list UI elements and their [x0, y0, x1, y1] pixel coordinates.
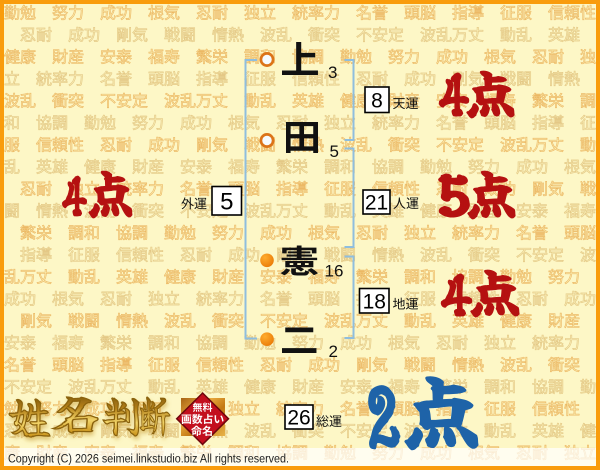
svg-text:18: 18: [363, 290, 386, 313]
svg-text:Copyright (C) 2026 seimei.link: Copyright (C) 2026 seimei.linkstudio.biz…: [8, 454, 289, 466]
svg-text:8: 8: [371, 89, 383, 112]
svg-text:16: 16: [325, 262, 344, 281]
svg-text:2: 2: [329, 342, 338, 361]
svg-text:3: 3: [328, 63, 337, 82]
svg-text:26: 26: [287, 407, 310, 430]
svg-text:5: 5: [220, 188, 233, 215]
svg-text:5: 5: [330, 142, 339, 161]
svg-text:21: 21: [365, 192, 388, 215]
